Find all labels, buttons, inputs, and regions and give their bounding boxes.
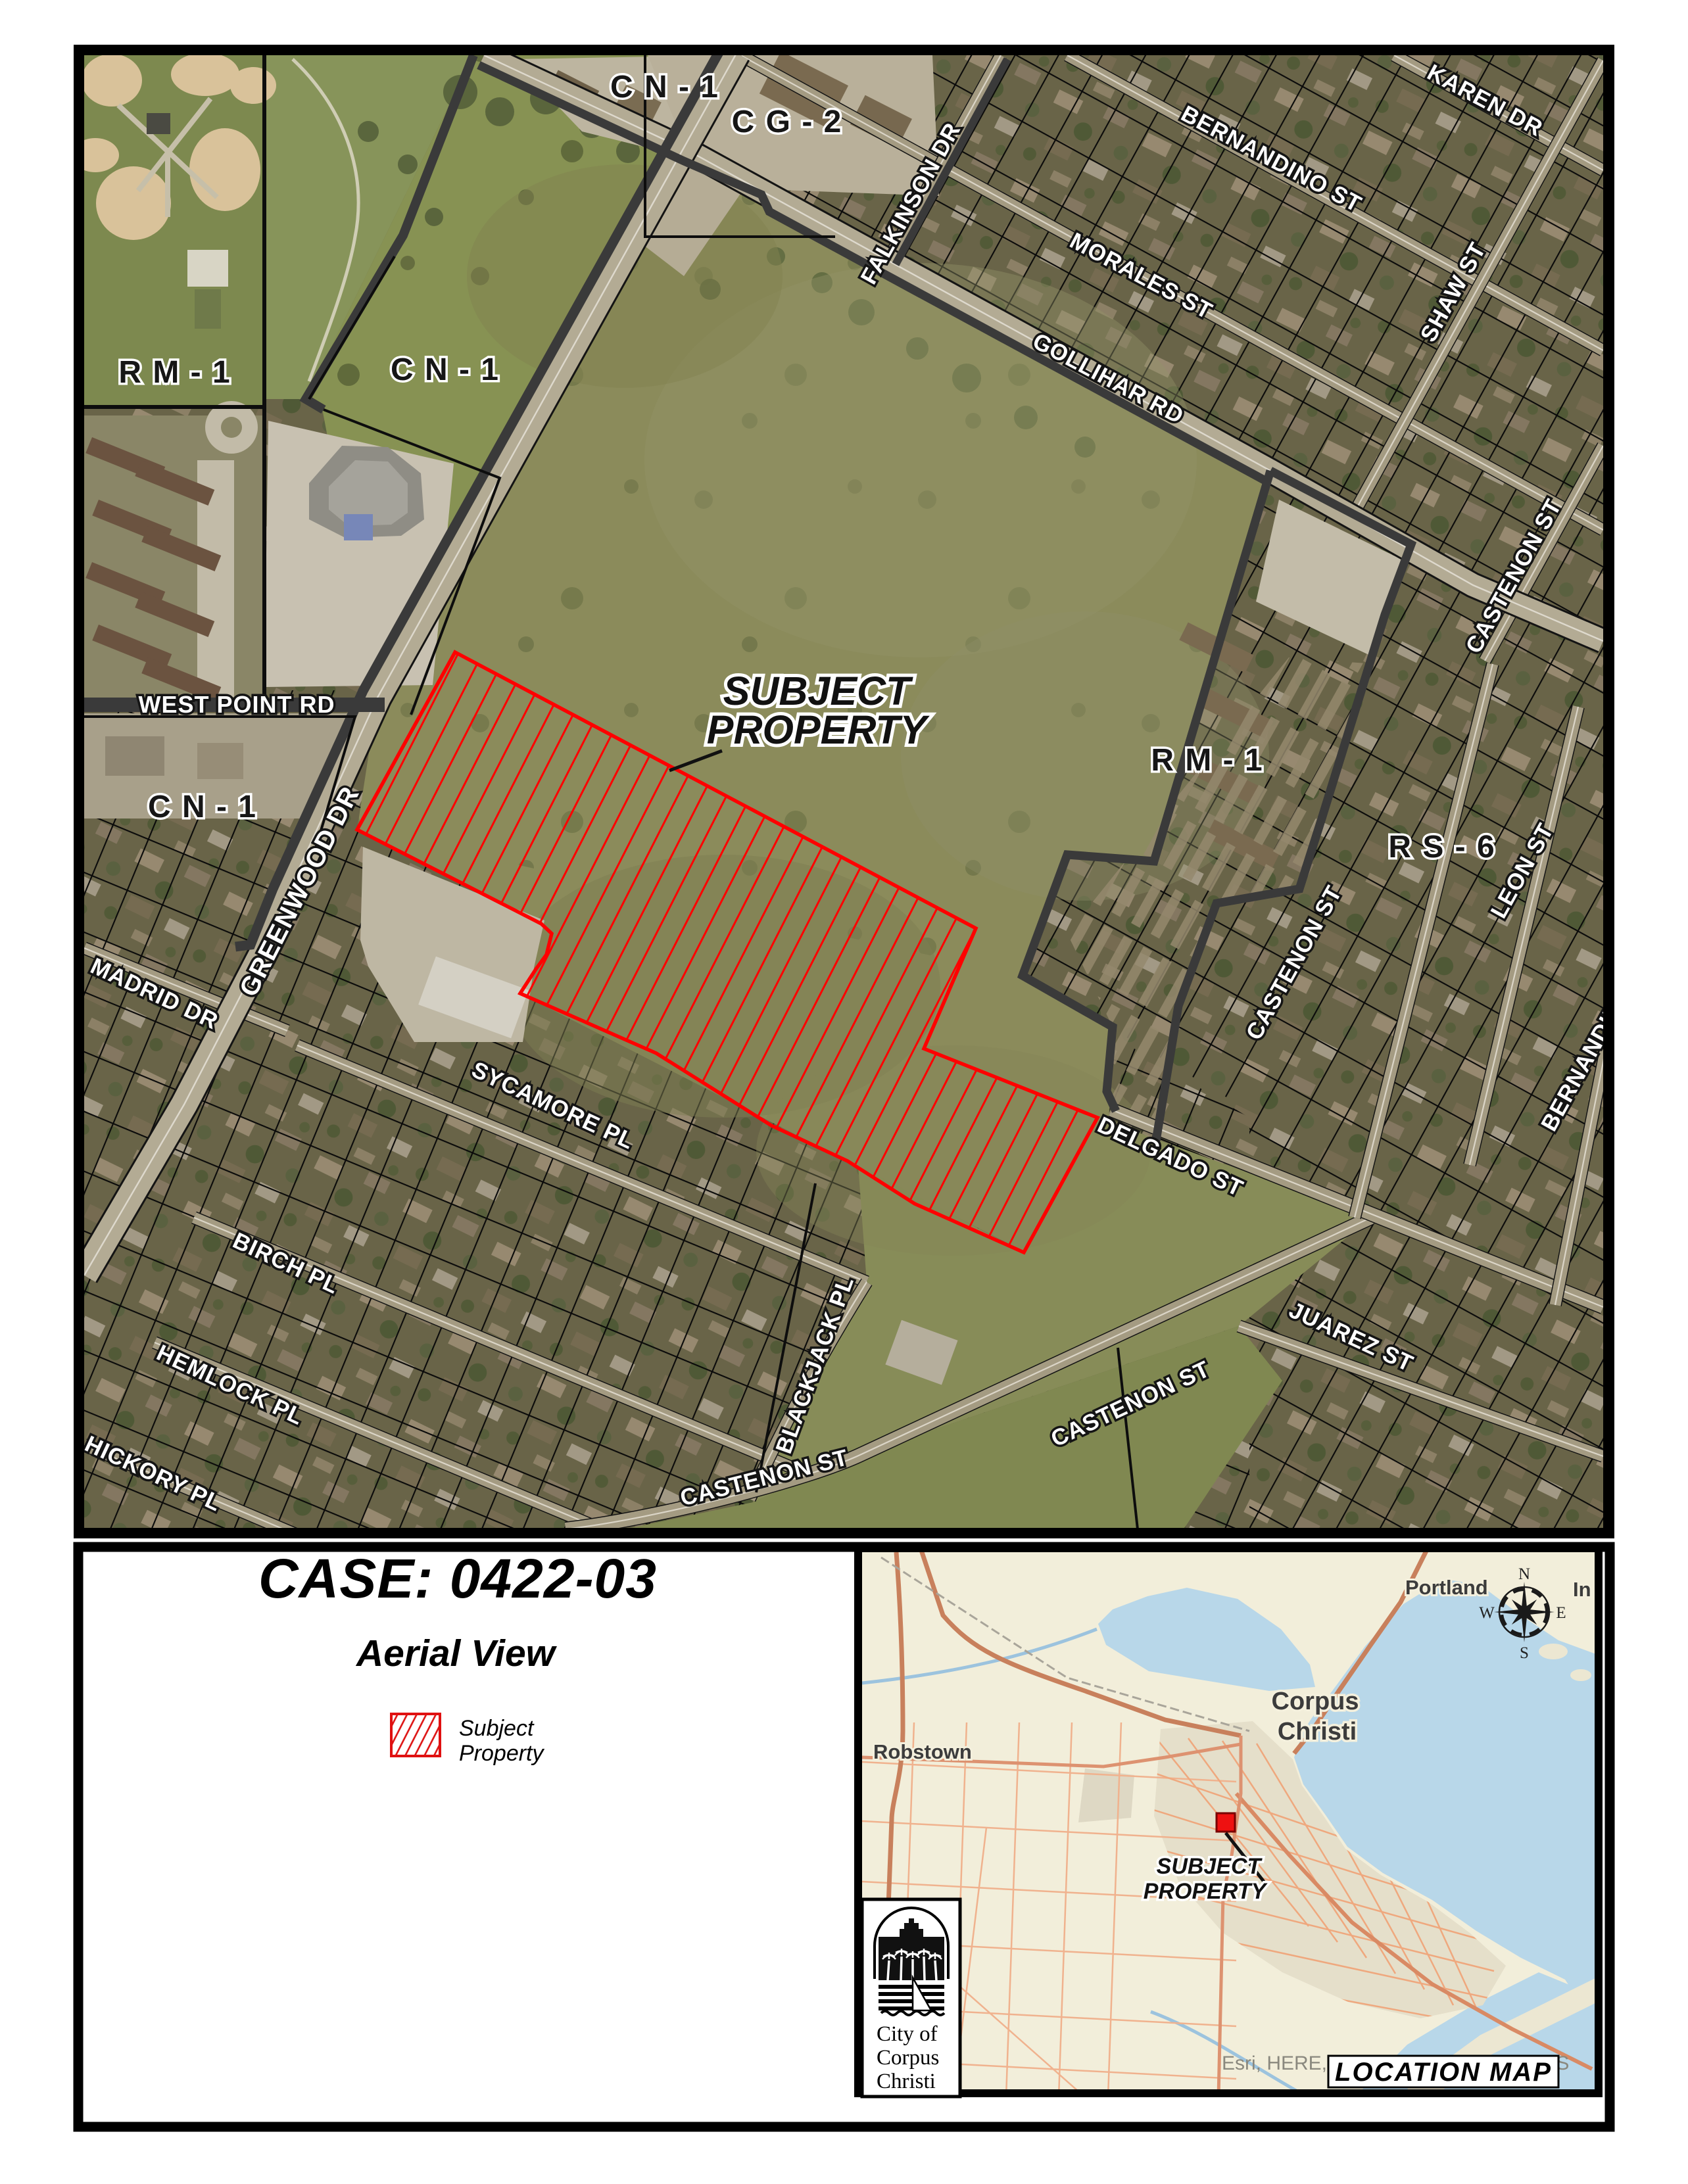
svg-text:R S - 6: R S - 6 [1388, 830, 1495, 865]
svg-text:Subject: Subject [459, 1716, 535, 1741]
svg-text:LOCATION MAP: LOCATION MAP [1335, 2058, 1552, 2087]
svg-text:PROPERTY: PROPERTY [1144, 1879, 1268, 1904]
svg-text:Christi: Christi [877, 2070, 936, 2093]
svg-text:CASE: 0422-03: CASE: 0422-03 [258, 1548, 657, 1609]
svg-text:SUBJECT: SUBJECT [1157, 1854, 1263, 1879]
svg-text:C G - 2: C G - 2 [732, 105, 843, 139]
svg-text:SUBJECT: SUBJECT [723, 669, 913, 713]
svg-text:PROPERTY: PROPERTY [707, 707, 930, 752]
svg-text:Corpus: Corpus [877, 2046, 939, 2070]
svg-text:Christi: Christi [1278, 1718, 1357, 1745]
svg-text:R M - 1: R M - 1 [1151, 743, 1263, 778]
svg-text:E: E [1556, 1604, 1566, 1622]
svg-text:N: N [1518, 1565, 1530, 1583]
svg-text:W: W [1479, 1604, 1495, 1622]
svg-text:C N - 1: C N - 1 [610, 70, 719, 105]
svg-text:S: S [1520, 1644, 1529, 1662]
svg-text:Portland: Portland [1405, 1576, 1488, 1599]
svg-text:Corpus: Corpus [1272, 1688, 1359, 1715]
svg-text:WEST POINT RD: WEST POINT RD [139, 691, 335, 718]
svg-text:Aerial View: Aerial View [355, 1632, 558, 1674]
svg-text:R M - 1: R M - 1 [118, 355, 231, 390]
svg-text:In: In [1573, 1578, 1591, 1601]
svg-text:C N - 1: C N - 1 [148, 790, 257, 824]
svg-text:Robstown: Robstown [873, 1740, 972, 1763]
svg-text:City of: City of [877, 2022, 938, 2046]
svg-text:Property: Property [459, 1741, 544, 1766]
svg-text:C N - 1: C N - 1 [391, 352, 500, 387]
